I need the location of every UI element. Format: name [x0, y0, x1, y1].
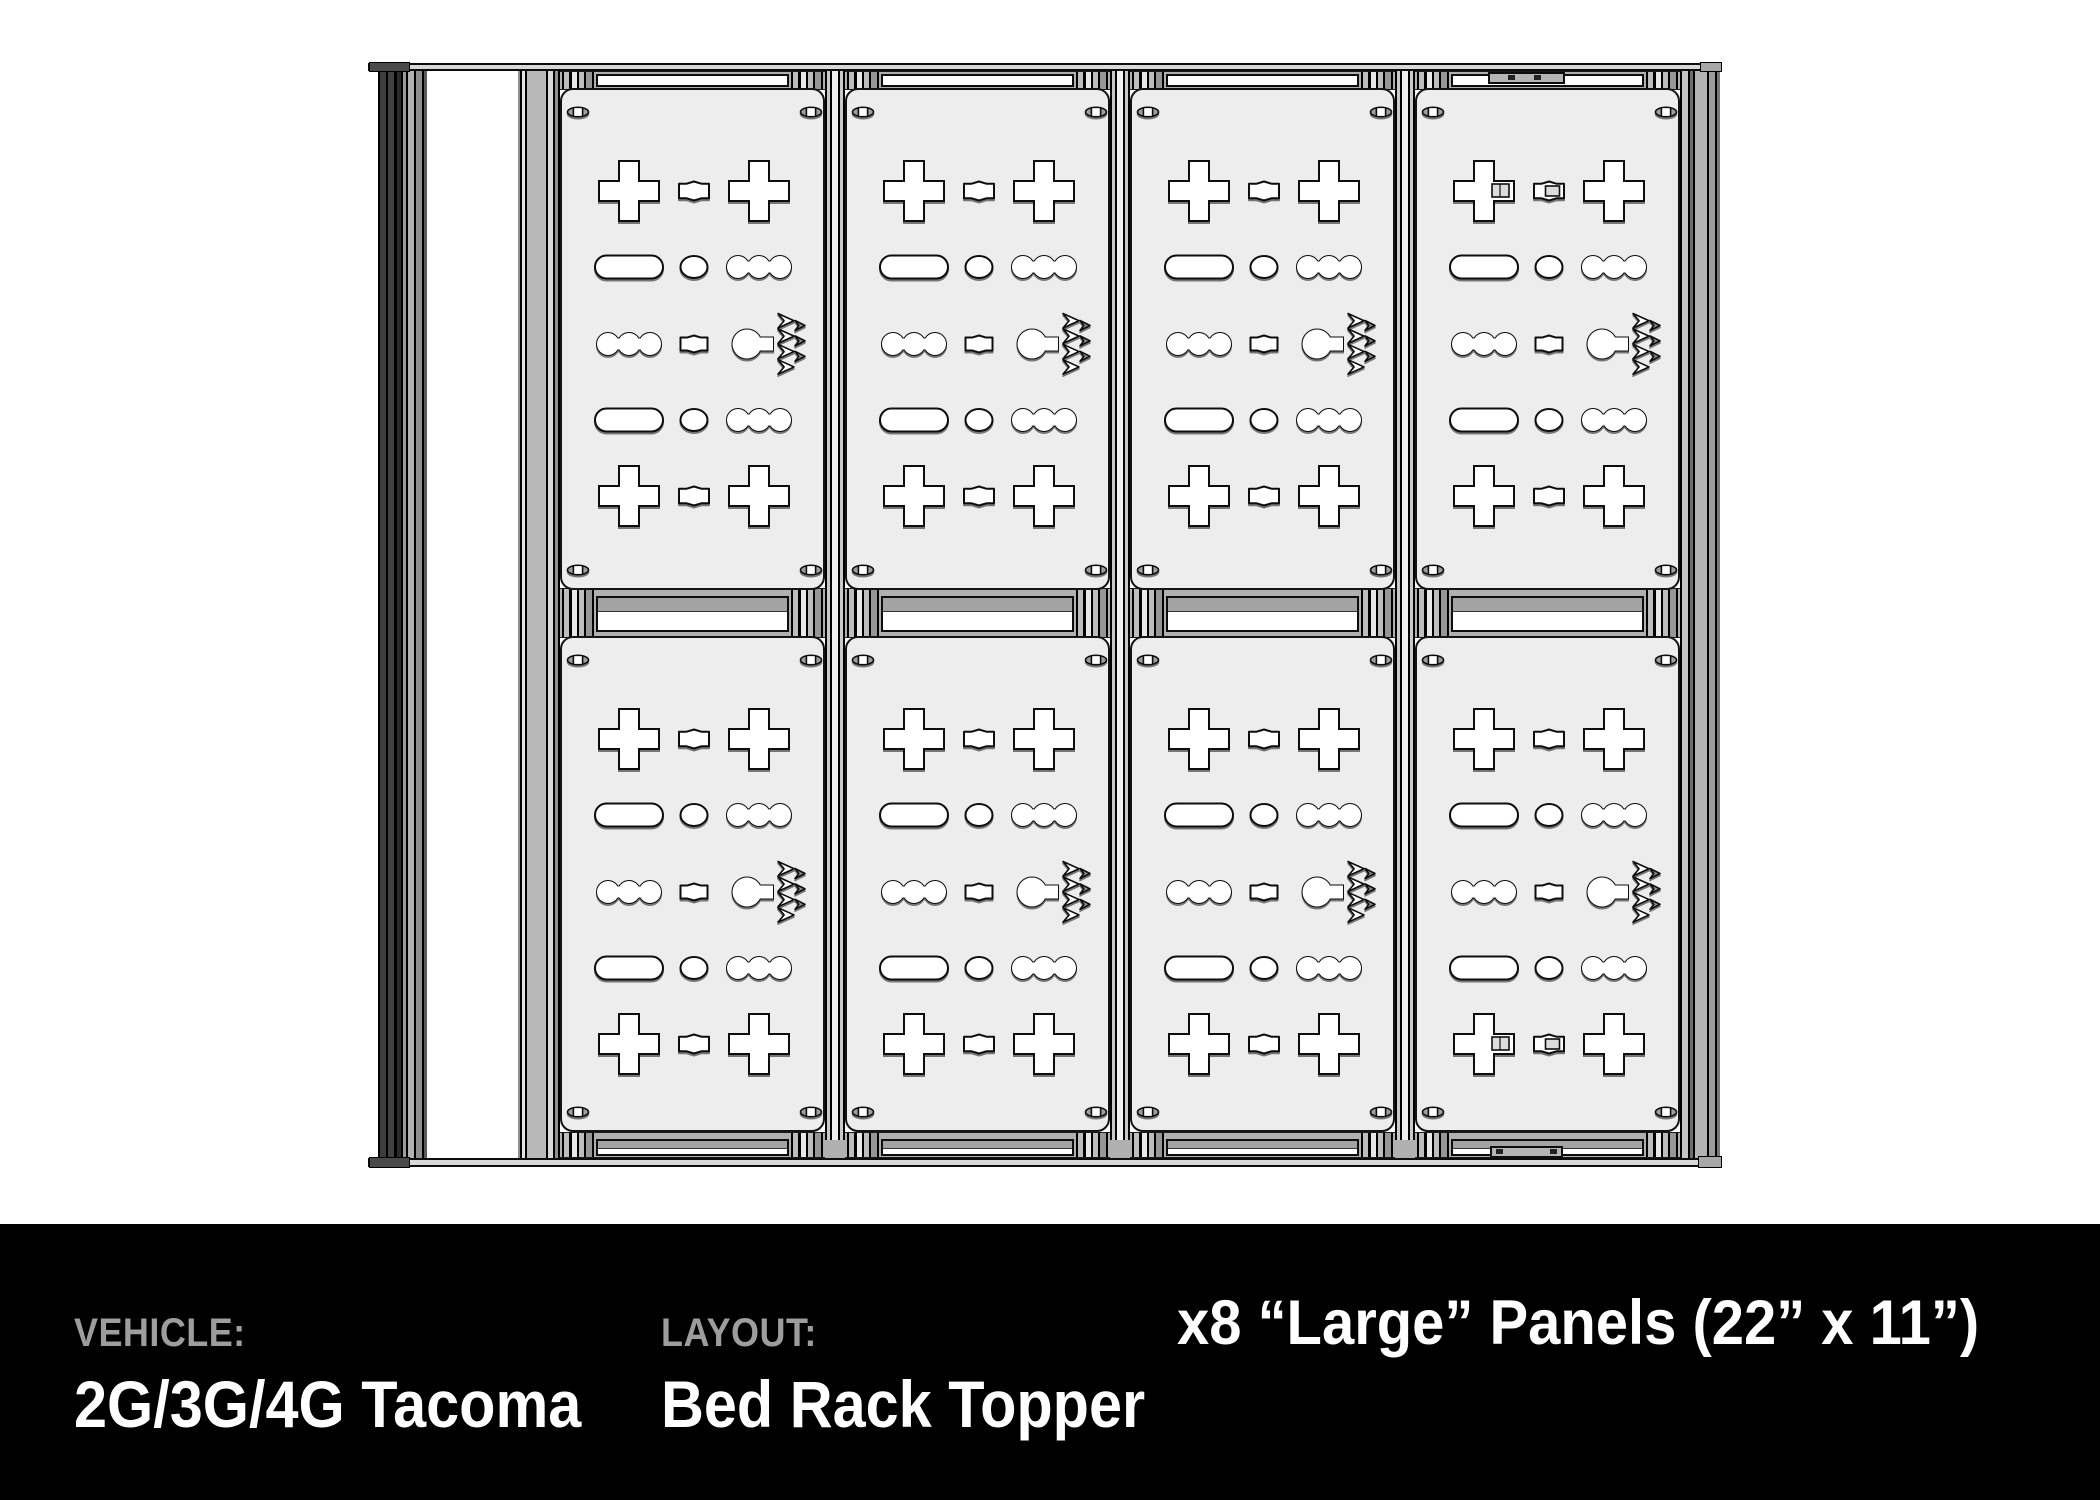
corner-screw [853, 565, 874, 574]
crossbar-bevel [1168, 1141, 1357, 1149]
clamp-tick [1550, 1149, 1557, 1154]
corner-screw [1371, 107, 1392, 116]
rack-top-view-drawing [0, 0, 2100, 1224]
corner-screw [568, 1107, 589, 1116]
large-panel [845, 88, 1110, 590]
panel-cutouts [1417, 90, 1682, 592]
top-rail-clamp [1488, 72, 1565, 84]
panel-cutouts [562, 90, 827, 592]
large-panel [845, 636, 1110, 1132]
crossbar-face [1166, 74, 1359, 87]
crossbar-face [596, 74, 789, 87]
corner-screw [853, 107, 874, 116]
corner-screw [801, 565, 822, 574]
crossbar-stub [847, 72, 879, 89]
corner-screw [1656, 655, 1677, 664]
large-panel [1415, 88, 1680, 590]
corner-screw [1656, 1107, 1677, 1116]
deck-cap-bottom-left [369, 1157, 410, 1168]
crossbar-stub [1076, 589, 1108, 637]
panel-divider-rail [1395, 71, 1415, 1158]
corner-screw [1138, 1107, 1159, 1116]
panel-divider-rail [825, 71, 845, 1158]
panel-cutouts [847, 90, 1112, 592]
large-panel [1130, 88, 1395, 590]
crossbar-stub [847, 1133, 879, 1157]
deck-cap-top-left [369, 62, 410, 72]
crossbar-stub [1646, 72, 1678, 89]
crossbar-face [881, 74, 1074, 87]
panel-cutouts [562, 638, 827, 1134]
corner-screw [801, 655, 822, 664]
large-panel [1415, 636, 1680, 1132]
crossbar-stub [1132, 589, 1164, 637]
corner-screw [568, 655, 589, 664]
bed-rack-topper-diagram: VEHICLE: 2G/3G/4G Tacoma LAYOUT: Bed Rac… [0, 0, 2100, 1500]
crossbar-stub [1132, 1133, 1164, 1157]
caption-bar: VEHICLE: 2G/3G/4G Tacoma LAYOUT: Bed Rac… [0, 1224, 2100, 1500]
mount-rail-left [518, 71, 560, 1158]
corner-screw [1656, 107, 1677, 116]
crossbar-stub [1646, 1133, 1678, 1157]
corner-screw [1423, 565, 1444, 574]
layout-value: Bed Rack Topper [661, 1371, 1145, 1437]
crossbar-bevel [598, 1141, 787, 1149]
crossbar-stub [1361, 1133, 1393, 1157]
crossbar-bevel [598, 598, 787, 612]
crossbar-stub [1361, 72, 1393, 89]
side-rail-left [378, 71, 427, 1158]
panel-cutouts [1417, 638, 1682, 1134]
panel-count-note: x8 “Large” Panels (22” x 11”) [1177, 1292, 1979, 1355]
crossbar-bevel [883, 1141, 1072, 1149]
deck-bar-bottom [368, 1158, 1722, 1167]
corner-screw [801, 1107, 822, 1116]
corner-screw [853, 1107, 874, 1116]
corner-screw [1086, 565, 1107, 574]
corner-screw [568, 565, 589, 574]
clamp-tick [1534, 75, 1541, 80]
clamp-tick [1496, 1149, 1503, 1154]
corner-screw [1423, 107, 1444, 116]
panel-cutouts [1132, 638, 1397, 1134]
corner-screw [1423, 655, 1444, 664]
crossbar-bevel [883, 598, 1072, 612]
vehicle-label: VEHICLE: [74, 1313, 246, 1353]
panel-cutouts [847, 638, 1112, 1134]
corner-screw [1138, 565, 1159, 574]
crossbar-stub [562, 72, 594, 89]
deck-cap-top-right [1700, 62, 1722, 72]
crossbar-bevel [1453, 598, 1642, 612]
crossbar-stub [1076, 72, 1108, 89]
deck-bar-top [368, 63, 1722, 71]
corner-screw [1371, 565, 1392, 574]
clamp-tick [1508, 75, 1515, 80]
crossbar-stub [1361, 589, 1393, 637]
deck-cap-bottom-right [1698, 1156, 1722, 1168]
corner-screw [1086, 655, 1107, 664]
crossbar-stub [1076, 1133, 1108, 1157]
side-rail-right [1680, 71, 1720, 1158]
corner-screw [1086, 1107, 1107, 1116]
corner-screw [1138, 655, 1159, 664]
corner-screw [853, 655, 874, 664]
large-panel [560, 636, 825, 1132]
large-panel [1130, 636, 1395, 1132]
large-panel [560, 88, 825, 590]
corner-screw [1371, 655, 1392, 664]
crossbar-stub [791, 589, 823, 637]
layout-label: LAYOUT: [661, 1313, 817, 1353]
corner-screw [1371, 1107, 1392, 1116]
crossbar-stub [847, 589, 879, 637]
corner-screw [1086, 107, 1107, 116]
crossbar-stub [791, 1133, 823, 1157]
corner-screw [1423, 1107, 1444, 1116]
corner-screw [801, 107, 822, 116]
crossbar-stub [1417, 589, 1449, 637]
crossbar-stub [562, 1133, 594, 1157]
corner-screw [568, 107, 589, 116]
crossbar-stub [562, 589, 594, 637]
crossbar-stub [1646, 589, 1678, 637]
vehicle-value: 2G/3G/4G Tacoma [74, 1371, 581, 1437]
crossbar-stub [1132, 72, 1164, 89]
corner-screw [1656, 565, 1677, 574]
crossbar-bevel [1168, 598, 1357, 612]
panel-cutouts [1132, 90, 1397, 592]
crossbar-stub [791, 72, 823, 89]
corner-screw [1138, 107, 1159, 116]
crossbar-stub [1417, 72, 1449, 89]
crossbar-stub [1417, 1133, 1449, 1157]
panel-divider-rail [1110, 71, 1130, 1158]
